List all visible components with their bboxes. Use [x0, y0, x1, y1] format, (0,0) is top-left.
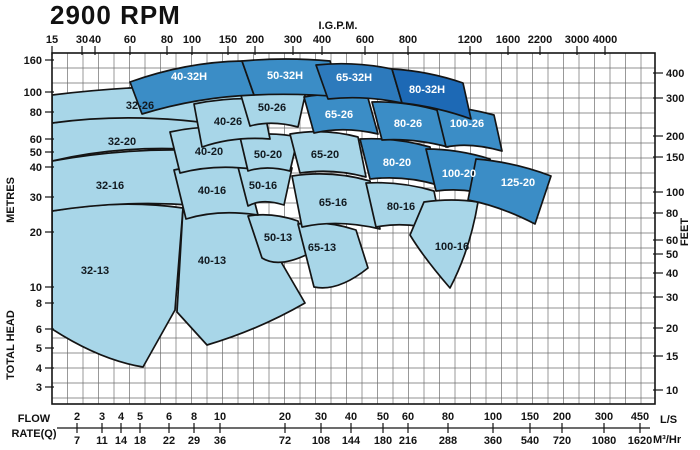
right-tick-label: 60 [666, 235, 678, 247]
pump-region-label-125-20: 125-20 [501, 177, 535, 189]
bottom-axis-title-flow: FLOW [6, 413, 62, 425]
right-tick-label: 80 [666, 208, 678, 220]
flow-m3hr-label: 360 [484, 435, 502, 447]
pump-region-label-40-20: 40-20 [195, 146, 223, 158]
flow-ls-label: 2 [74, 411, 80, 423]
flow-ls-label: 4 [118, 411, 125, 423]
flow-ls-label: 80 [442, 411, 454, 423]
pump-region-label-65-26: 65-26 [325, 109, 353, 121]
right-tick-label: 40 [666, 268, 678, 280]
left-tick-label: 6 [36, 324, 42, 336]
flow-m3hr-label: 144 [342, 435, 361, 447]
right-tick-label: 15 [666, 351, 678, 363]
pump-region-label-32-26: 32-26 [126, 100, 154, 112]
top-tick-label: 80 [161, 34, 173, 46]
pump-region-label-50-32H: 50-32H [267, 70, 303, 82]
pump-region-label-100-20: 100-20 [442, 168, 476, 180]
top-axis-title: I.G.P.M. [302, 20, 374, 32]
flow-m3hr-label: 720 [553, 435, 571, 447]
flow-m3hr-label: 36 [214, 435, 226, 447]
pump-region-label-100-26: 100-26 [450, 118, 484, 130]
page-title: 2900 RPM [50, 0, 181, 31]
flow-m3hr-label: 14 [115, 435, 128, 447]
right-tick-label: 10 [666, 385, 678, 397]
right-tick-label: 300 [666, 93, 684, 105]
pump-region-label-40-13: 40-13 [198, 255, 226, 267]
right-tick-label: 150 [666, 152, 684, 164]
right-tick-label: 400 [666, 68, 684, 80]
right-tick-label: 50 [666, 249, 678, 261]
left-tick-label: 3 [36, 382, 42, 394]
flow-ls-label: 8 [191, 411, 197, 423]
flow-m3hr-label: 180 [374, 435, 392, 447]
pump-region-label-40-16: 40-16 [198, 185, 226, 197]
flow-ls-label: 450 [631, 411, 649, 423]
pump-region-label-32-16: 32-16 [96, 180, 124, 192]
pump-region-label-80-20: 80-20 [383, 157, 411, 169]
flow-ls-label: 5 [137, 411, 143, 423]
flow-ls-label: 20 [279, 411, 291, 423]
top-tick-label: 4000 [593, 34, 617, 46]
pump-region-label-50-16: 50-16 [249, 180, 277, 192]
left-tick-label: 8 [36, 298, 42, 310]
top-tick-label: 400 [313, 34, 331, 46]
flow-m3hr-label: 1080 [592, 435, 616, 447]
top-tick-label: 2200 [528, 34, 552, 46]
pump-region-label-100-16: 100-16 [435, 241, 469, 253]
flow-ls-label: 300 [595, 411, 613, 423]
right-axis-title-feet: FEET [679, 187, 693, 277]
left-tick-label: 50 [30, 147, 42, 159]
flow-ls-label: 10 [214, 411, 226, 423]
pump-region-label-65-13: 65-13 [308, 242, 336, 254]
flow-ls-label: 200 [553, 411, 571, 423]
top-tick-label: 300 [284, 34, 302, 46]
flow-m3hr-label: 7 [74, 435, 80, 447]
top-tick-label: 1600 [496, 34, 520, 46]
pump-region-label-50-26: 50-26 [258, 102, 286, 114]
left-tick-label: 4 [36, 363, 43, 375]
top-tick-label: 15 [46, 34, 58, 46]
pump-region-label-32-20: 32-20 [108, 136, 136, 148]
pump-region-label-80-26: 80-26 [394, 118, 422, 130]
right-tick-label: 200 [666, 131, 684, 143]
flow-m3hr-label: 216 [399, 435, 417, 447]
flow-m3hr-label: 29 [188, 435, 200, 447]
right-tick-label: 20 [666, 323, 678, 335]
flow-ls-label: 150 [521, 411, 539, 423]
top-tick-label: 150 [219, 34, 237, 46]
bottom-axis-unit-m3hr: M³/Hr [653, 434, 681, 446]
flow-ls-label: 30 [315, 411, 327, 423]
flow-m3hr-label: 22 [163, 435, 175, 447]
flow-ls-label: 3 [99, 411, 105, 423]
left-tick-label: 80 [30, 107, 42, 119]
pump-region-label-50-20: 50-20 [254, 149, 282, 161]
top-tick-label: 3000 [565, 34, 589, 46]
top-tick-label: 1200 [458, 34, 482, 46]
right-tick-label: 30 [666, 292, 678, 304]
flow-m3hr-label: 72 [279, 435, 291, 447]
left-tick-label: 160 [24, 55, 42, 67]
bottom-axis-title-rateq: RATE(Q) [6, 428, 62, 440]
left-tick-label: 60 [30, 134, 42, 146]
top-tick-label: 800 [399, 34, 417, 46]
flow-ls-label: 50 [377, 411, 389, 423]
left-tick-label: 40 [30, 162, 42, 174]
pump-region-label-80-32H: 80-32H [409, 84, 445, 96]
pump-region-label-65-16: 65-16 [319, 197, 347, 209]
flow-m3hr-label: 288 [439, 435, 457, 447]
pump-region-label-50-13: 50-13 [264, 232, 292, 244]
flow-m3hr-label: 18 [134, 435, 146, 447]
left-tick-label: 20 [30, 227, 42, 239]
left-tick-label: 100 [24, 87, 42, 99]
pump-region-label-65-32H: 65-32H [336, 72, 372, 84]
top-tick-label: 40 [89, 34, 101, 46]
flow-ls-label: 6 [166, 411, 172, 423]
pump-region-label-65-20: 65-20 [311, 149, 339, 161]
pump-region-125-20[interactable] [468, 159, 551, 224]
top-tick-label: 200 [246, 34, 264, 46]
left-axis-title-metres: METRES [5, 155, 19, 245]
pump-region-label-32-13: 32-13 [81, 265, 109, 277]
flow-ls-label: 60 [402, 411, 414, 423]
pump-region-label-40-32H: 40-32H [171, 71, 207, 83]
left-tick-label: 30 [30, 192, 42, 204]
flow-m3hr-label: 11 [96, 435, 108, 447]
pump-region-label-80-16: 80-16 [387, 201, 415, 213]
top-tick-label: 600 [356, 34, 374, 46]
top-tick-label: 100 [183, 34, 201, 46]
left-tick-label: 5 [36, 343, 42, 355]
flow-m3hr-label: 108 [312, 435, 330, 447]
left-axis-title-total-head: TOTAL HEAD [5, 300, 19, 390]
pump-region-32-13[interactable] [52, 204, 183, 367]
top-tick-label: 30 [76, 34, 88, 46]
pump-region-label-40-26: 40-26 [214, 116, 242, 128]
pump-chart-canvas: 32-1340-1350-1365-1332-1640-1650-1665-16… [0, 0, 700, 450]
pump-selection-chart-page: 32-1340-1350-1365-1332-1640-1650-1665-16… [0, 0, 700, 450]
top-tick-label: 60 [124, 34, 136, 46]
flow-ls-label: 40 [345, 411, 357, 423]
left-tick-label: 10 [30, 282, 42, 294]
bottom-axis-unit-ls: L/S [660, 414, 677, 426]
flow-m3hr-label: 1620 [628, 435, 652, 447]
flow-m3hr-label: 540 [521, 435, 539, 447]
flow-ls-label: 100 [484, 411, 502, 423]
